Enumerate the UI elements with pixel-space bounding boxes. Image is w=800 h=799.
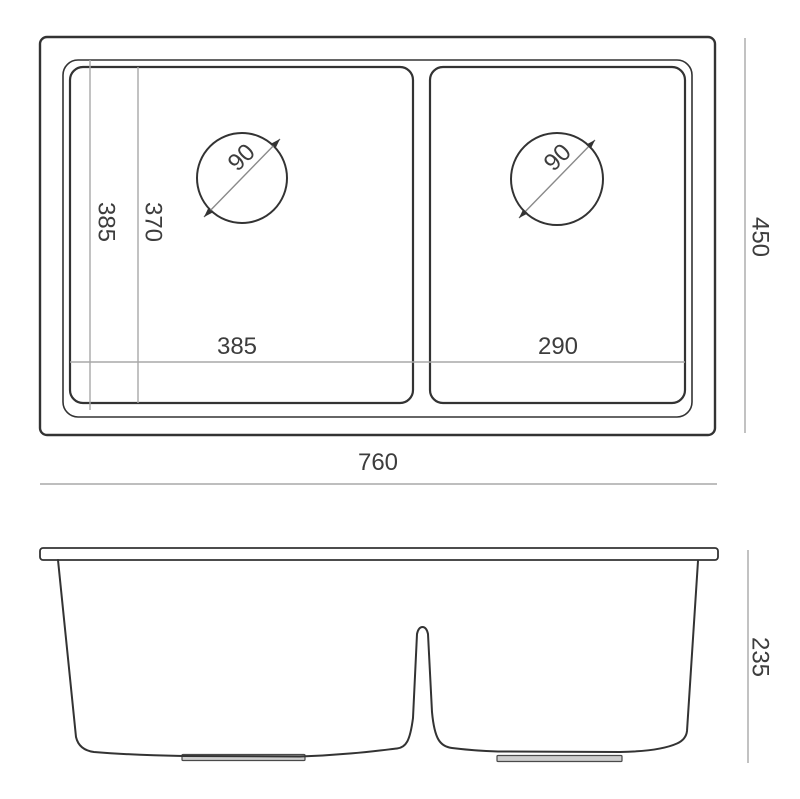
front-body-outline [58, 560, 698, 757]
front-rim-outline [40, 548, 718, 560]
left-drain-diameter-label: 90 [223, 139, 261, 177]
right-drain-diameter-label: 90 [539, 139, 577, 177]
right-foot-pad [497, 756, 622, 762]
right-bowl-width-label: 290 [538, 333, 578, 360]
bowl-inner-depth-label: 370 [140, 202, 167, 242]
drawing-canvas: 90 90 385 370 385 290 450 760 [0, 0, 800, 794]
overall-depth-label: 450 [747, 217, 774, 257]
front-view: 235 [40, 548, 774, 763]
cutout-depth-label: 385 [93, 202, 120, 242]
top-view: 90 90 385 370 385 290 450 760 [40, 37, 774, 484]
sink-technical-drawing: 90 90 385 370 385 290 450 760 [0, 0, 800, 794]
front-height-label: 235 [747, 637, 774, 677]
left-bowl-width-label: 385 [217, 333, 257, 360]
overall-width-label: 760 [358, 449, 398, 476]
